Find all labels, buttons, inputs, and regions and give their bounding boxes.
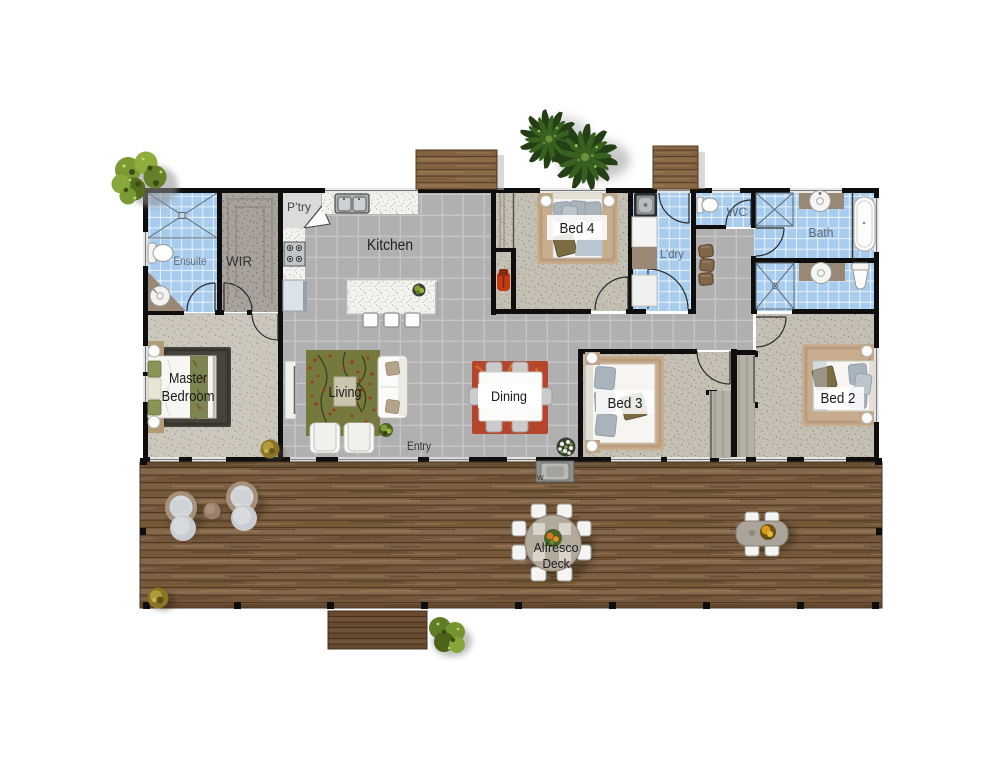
svg-text:Deck: Deck xyxy=(543,557,571,571)
svg-text:Master: Master xyxy=(169,370,207,387)
svg-text:Alfresco: Alfresco xyxy=(534,541,579,555)
svg-text:Bedroom: Bedroom xyxy=(162,388,215,405)
svg-text:Bed 3: Bed 3 xyxy=(608,396,643,412)
svg-text:Ensuite: Ensuite xyxy=(174,254,207,268)
svg-text:Bath: Bath xyxy=(809,226,834,240)
svg-text:W: W xyxy=(537,475,544,482)
svg-text:Living: Living xyxy=(329,384,362,401)
svg-text:Dining: Dining xyxy=(491,389,527,404)
svg-text:WC: WC xyxy=(727,205,748,219)
svg-text:Bed 2: Bed 2 xyxy=(821,391,856,407)
svg-text:L’dry: L’dry xyxy=(660,247,684,261)
svg-text:Bed 4: Bed 4 xyxy=(560,221,595,237)
svg-text:Entry: Entry xyxy=(407,441,431,453)
svg-text:Kitchen: Kitchen xyxy=(367,237,413,254)
svg-text:WIR: WIR xyxy=(226,253,252,269)
svg-text:P’try: P’try xyxy=(287,200,311,214)
